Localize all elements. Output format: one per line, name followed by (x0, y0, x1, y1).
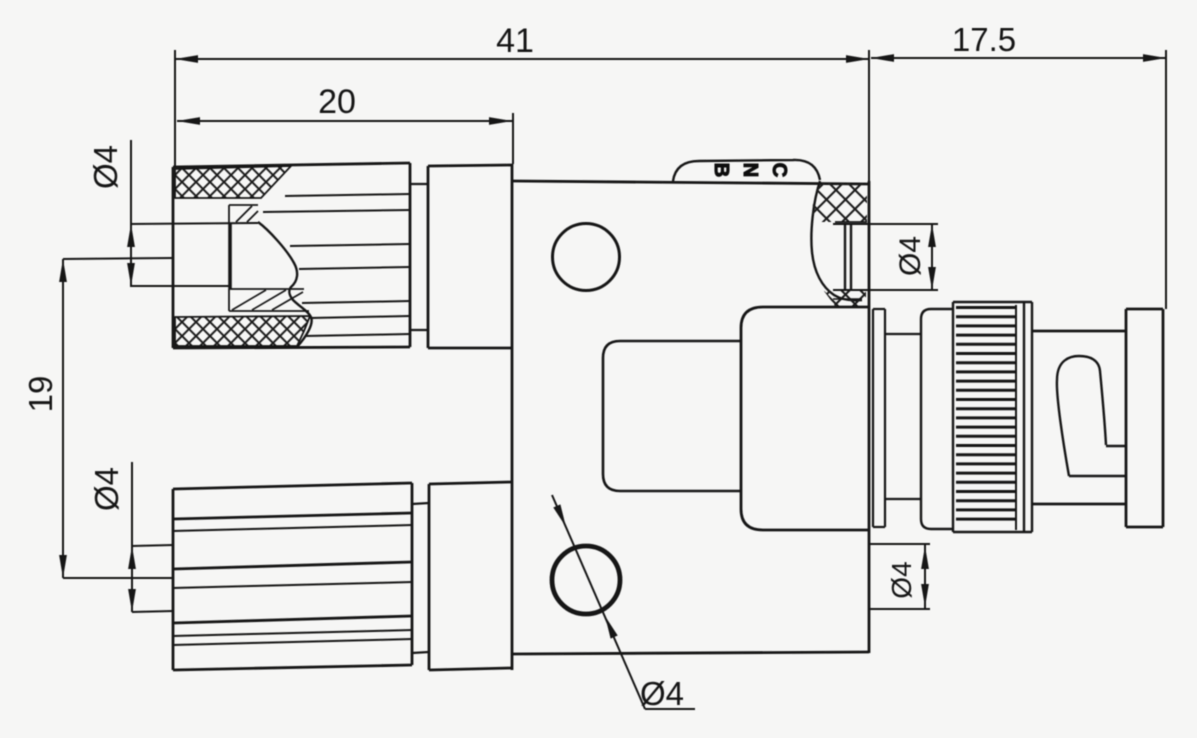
svg-text:B: B (710, 163, 732, 177)
svg-text:Ø4: Ø4 (87, 145, 124, 189)
svg-text:17.5: 17.5 (952, 21, 1016, 58)
svg-text:Ø4: Ø4 (88, 467, 125, 511)
svg-text:41: 41 (496, 22, 534, 60)
svg-text:19: 19 (22, 376, 59, 413)
svg-text:Ø4: Ø4 (640, 675, 684, 712)
svg-text:Ø4: Ø4 (886, 561, 917, 598)
svg-text:20: 20 (318, 83, 356, 121)
svg-text:Ø4: Ø4 (894, 236, 927, 276)
svg-text:N: N (739, 163, 761, 177)
svg-text:C: C (768, 163, 790, 177)
